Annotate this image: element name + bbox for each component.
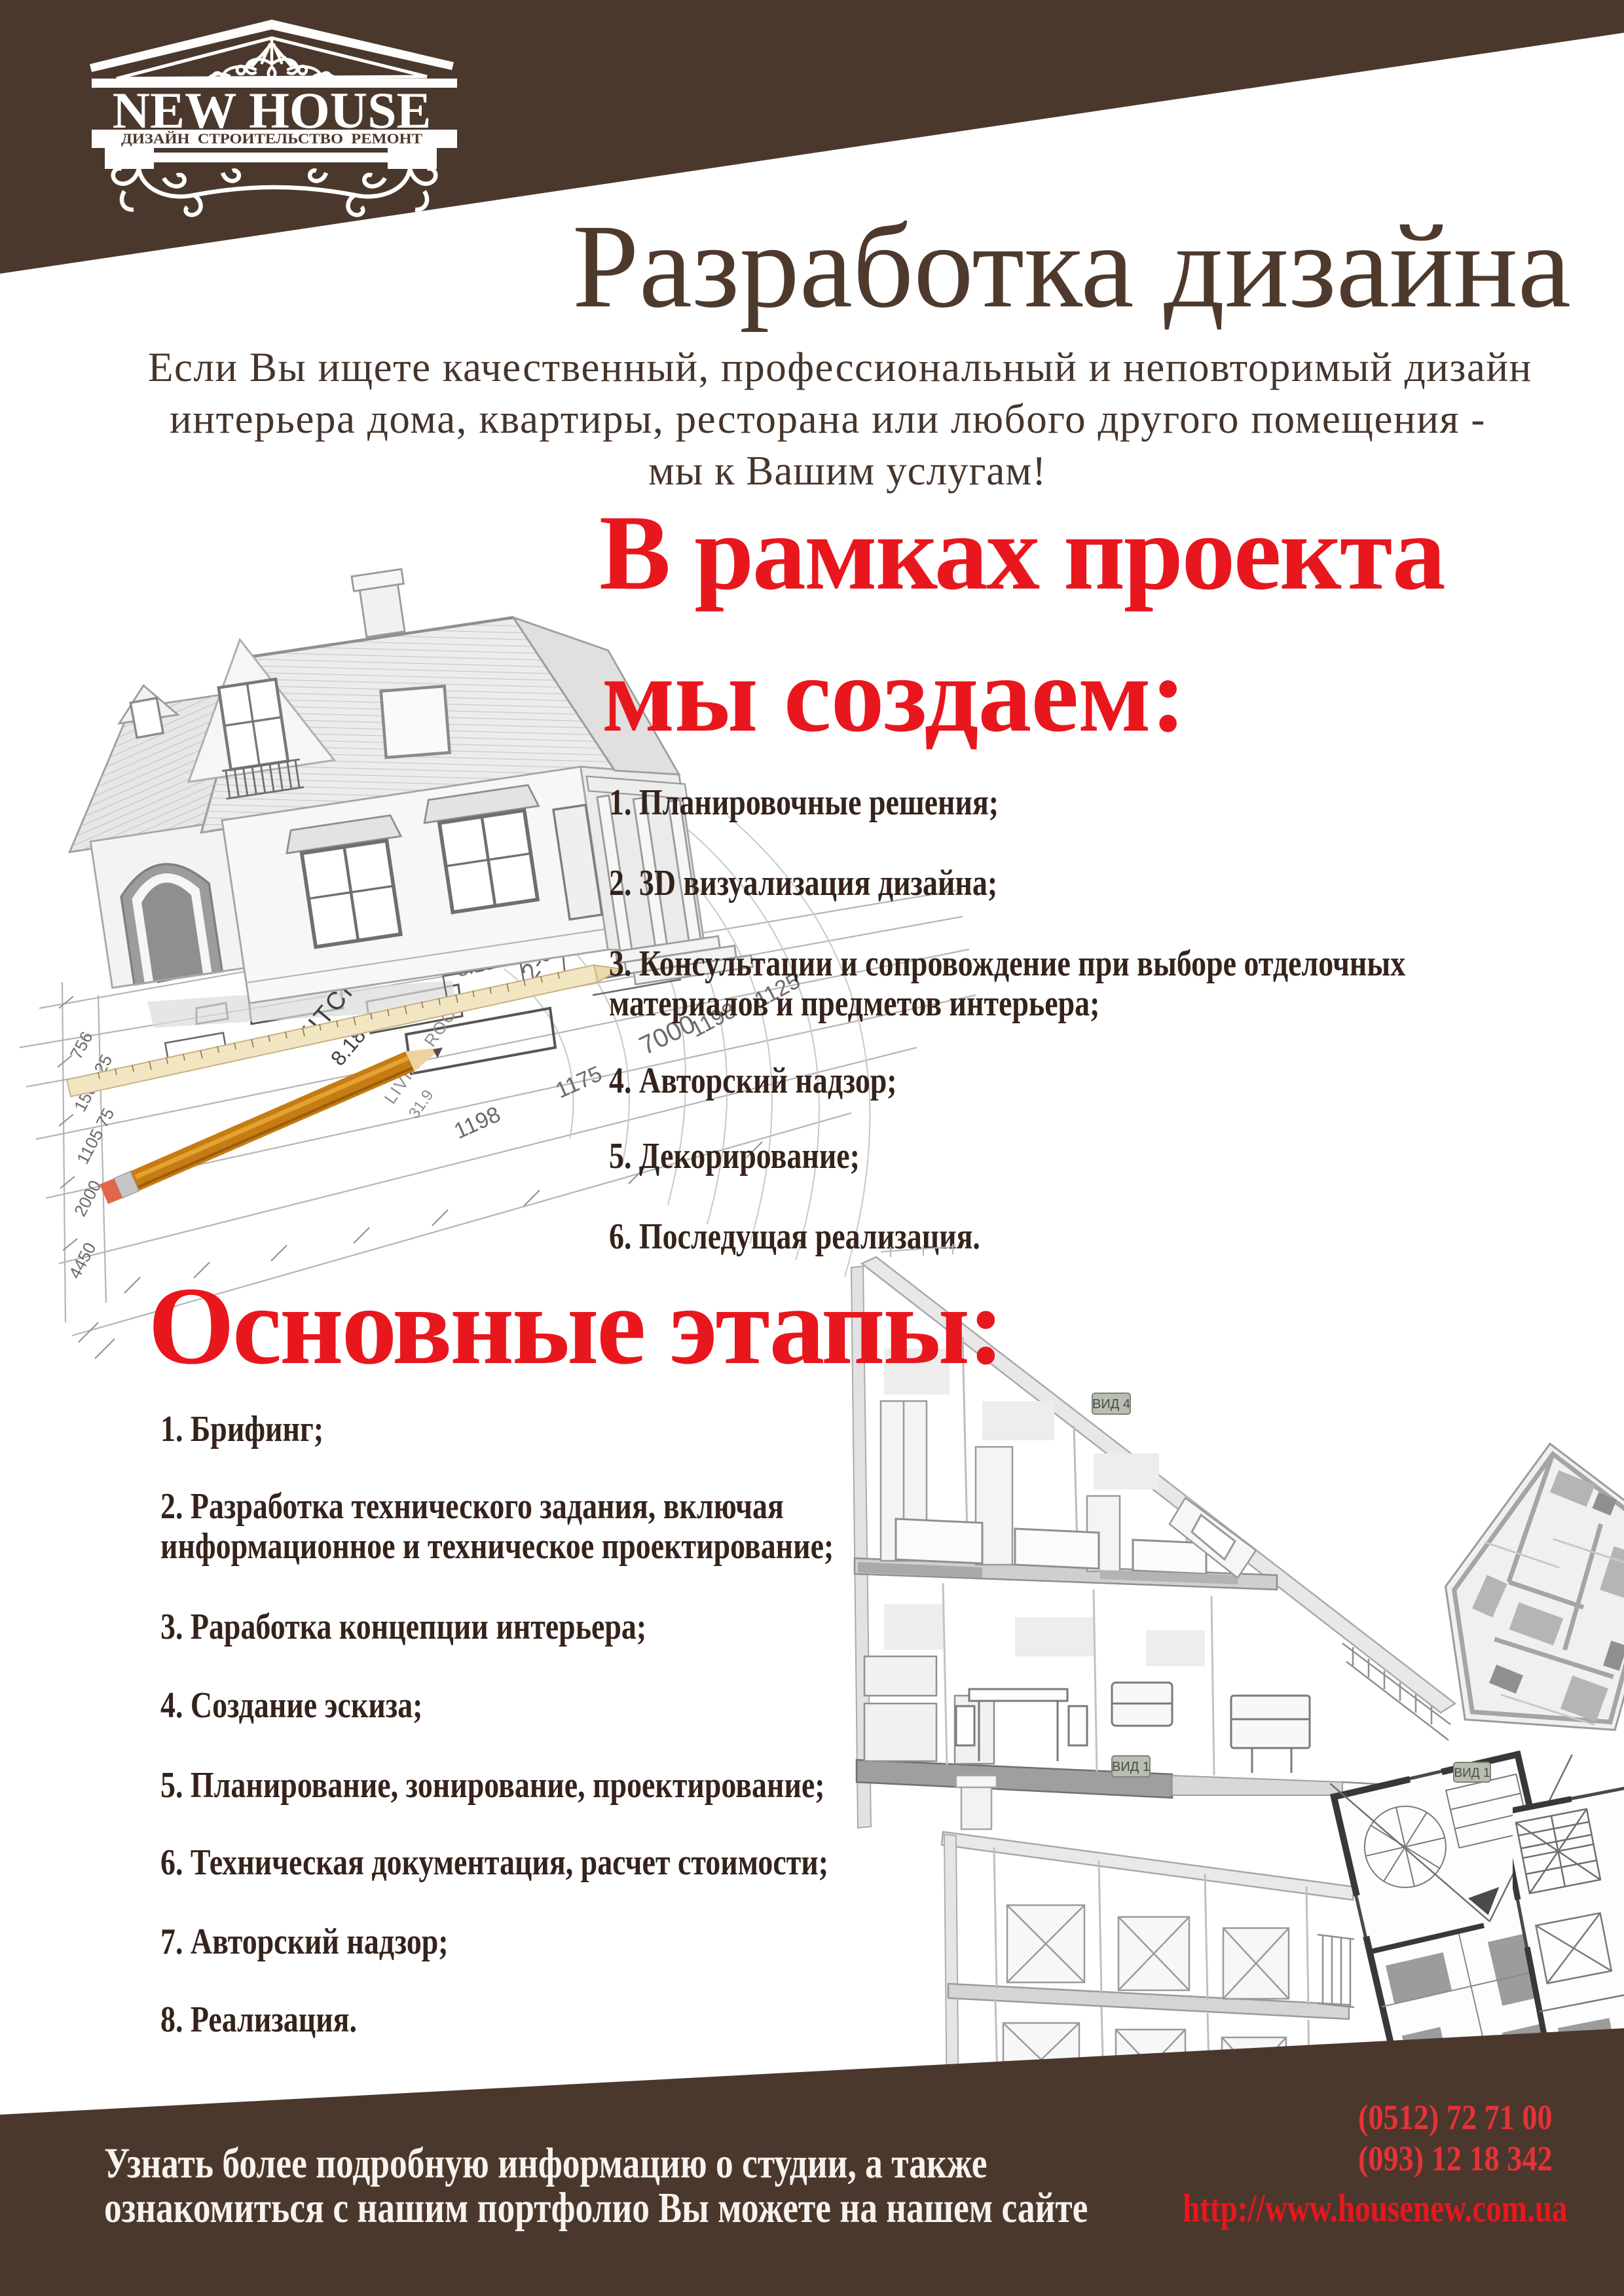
svg-text:ВИД 4: ВИД 4 <box>1092 1397 1130 1412</box>
svg-text:ДИЗАЙН СТРОИТЕЛЬСТВО РЕМОНТ: ДИЗАЙН СТРОИТЕЛЬСТВО РЕМОНТ <box>121 130 422 147</box>
svg-text:31.9: 31.9 <box>405 1087 437 1122</box>
svg-text:2000: 2000 <box>70 1177 105 1220</box>
svg-text:1105 75: 1105 75 <box>73 1104 119 1167</box>
svg-text:ВИД 1: ВИД 1 <box>1112 1760 1150 1774</box>
svg-text:ВИД 1: ВИД 1 <box>1454 1766 1490 1780</box>
svg-text:1175: 1175 <box>552 1061 606 1103</box>
